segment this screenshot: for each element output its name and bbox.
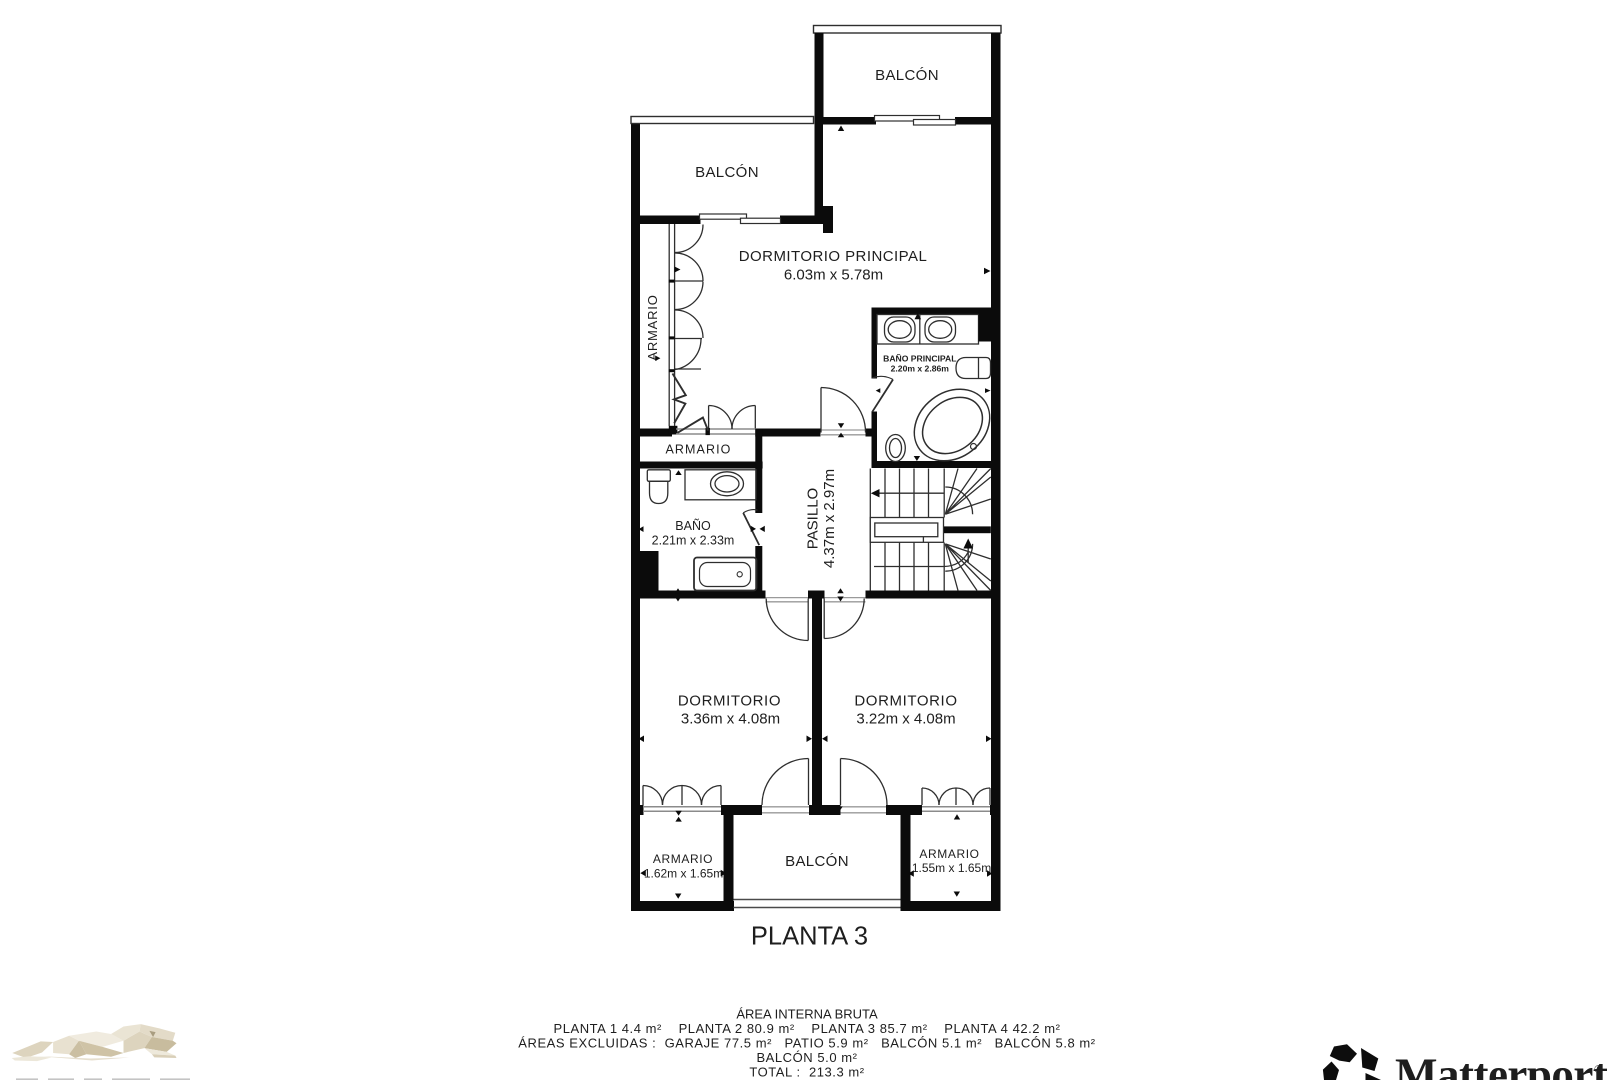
svg-text:2.21m x 2.33m: 2.21m x 2.33m [652,534,735,548]
svg-text:3.36m x 4.08m: 3.36m x 4.08m [681,711,780,728]
svg-text:4.37m x 2.97m: 4.37m x 2.97m [821,469,838,568]
svg-text:DORMITORIO PRINCIPAL: DORMITORIO PRINCIPAL [739,248,927,265]
svg-text:®: ® [1594,1062,1603,1076]
svg-text:ARMARIO: ARMARIO [645,294,660,360]
svg-text:DORMITORIO: DORMITORIO [854,693,957,710]
svg-text:BAÑO PRINCIPAL: BAÑO PRINCIPAL [883,354,956,364]
svg-text:ARMARIO: ARMARIO [665,443,731,457]
svg-text:ARMARIO: ARMARIO [919,847,979,861]
svg-text:DORMITORIO: DORMITORIO [678,693,781,710]
svg-text:PLANTA 3: PLANTA 3 [751,923,868,951]
svg-text:ÁREA INTERNA BRUTA: ÁREA INTERNA BRUTA [736,1007,878,1022]
svg-text:BALCÓN: BALCÓN [785,853,849,870]
svg-text:PASILLO: PASILLO [805,488,822,549]
svg-text:Matterport: Matterport [1395,1050,1608,1080]
svg-text:ARMARIO: ARMARIO [653,852,713,866]
svg-text:BAÑO: BAÑO [675,519,711,533]
svg-text:2.20m x 2.86m: 2.20m x 2.86m [891,364,950,374]
svg-text:6.03m x 5.78m: 6.03m x 5.78m [784,267,883,284]
svg-text:BALCÓN: BALCÓN [875,67,939,84]
svg-text:BALCÓN: BALCÓN [695,164,759,181]
svg-text:1.55m x 1.65m: 1.55m x 1.65m [912,861,991,875]
svg-text:BALCÓN 5.0 m²: BALCÓN 5.0 m² [756,1050,857,1065]
svg-text:3.22m x 4.08m: 3.22m x 4.08m [856,711,955,728]
svg-text:TOTAL : 213.3 m²: TOTAL : 213.3 m² [749,1065,864,1080]
svg-text:PLANTA 1 4.4 m² PLANTA 2 80: PLANTA 1 4.4 m² PLANTA 2 80.9 m² PLANTA … [553,1021,1060,1036]
svg-text:1.62m x 1.65m: 1.62m x 1.65m [644,867,723,881]
svg-text:ÁREAS EXCLUIDAS : GARAJE 77.5: ÁREAS EXCLUIDAS : GARAJE 77.5 m² PATIO 5… [518,1036,1096,1051]
